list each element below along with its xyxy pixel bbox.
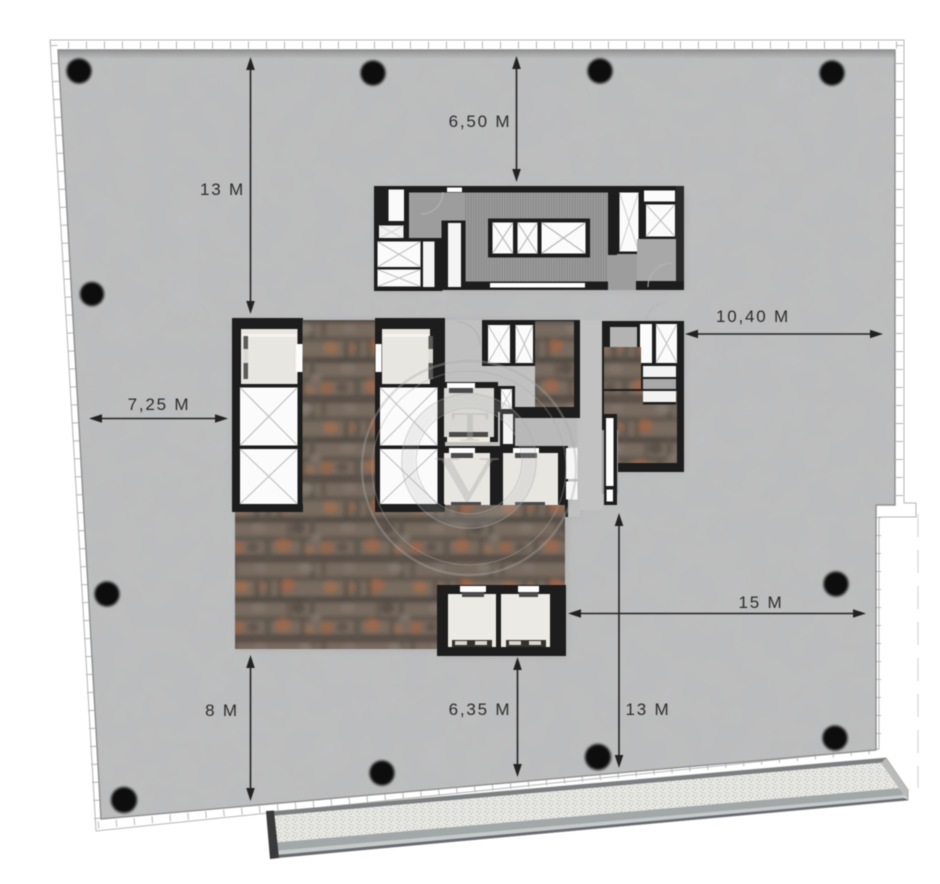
svg-text:13 M: 13 M — [626, 700, 671, 719]
svg-text:15 M: 15 M — [739, 593, 784, 612]
svg-text:13 M: 13 M — [200, 180, 245, 199]
svg-text:6,50 M: 6,50 M — [449, 112, 512, 131]
svg-text:6,35 M: 6,35 M — [449, 700, 512, 719]
svg-text:V: V — [434, 443, 500, 516]
svg-text:8 M: 8 M — [205, 701, 239, 720]
svg-text:7,25 M: 7,25 M — [128, 395, 191, 414]
svg-text:10,40 M: 10,40 M — [716, 307, 790, 326]
